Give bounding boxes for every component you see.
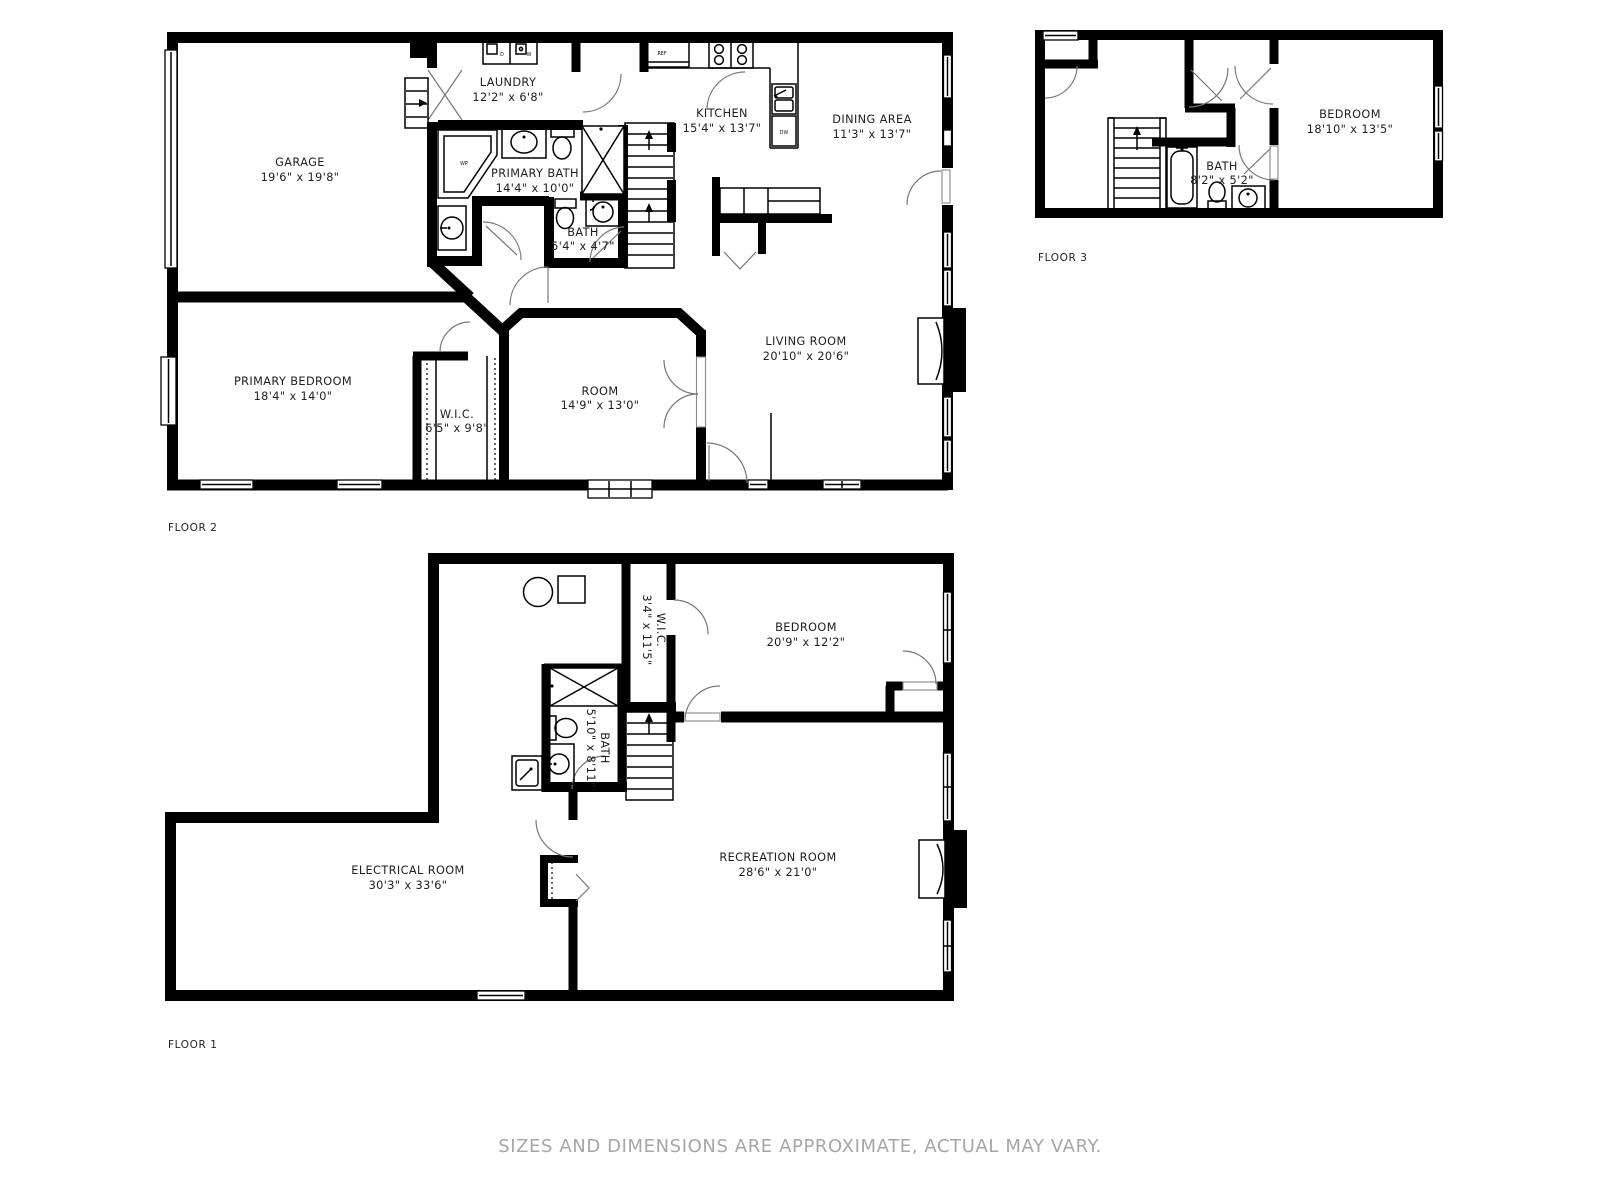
floorplan-canvas: D W REF: [0, 0, 1600, 1200]
dishwasher-icon: DW: [772, 116, 796, 146]
kitchen-sink-icon: [772, 84, 796, 114]
room-label: BATH: [567, 226, 599, 239]
sink-icon: [1232, 186, 1265, 210]
sink-icon: [438, 206, 466, 250]
furnace-icon: [558, 576, 585, 603]
room-label: KITCHEN: [696, 107, 748, 120]
room-dims: 11'3" x 13'7": [833, 128, 912, 141]
floor2-fireplace: [918, 318, 944, 384]
toilet-icon: [555, 199, 576, 229]
sink-icon: [586, 197, 620, 226]
room-label: BATH: [598, 732, 611, 764]
toilet-icon: [547, 716, 577, 740]
room-dims: 18'10" x 13'5": [1307, 123, 1393, 136]
shower-icon: [582, 126, 624, 194]
room-dims: 6'5" x 9'8": [425, 422, 489, 435]
floor-3-plan: BEDROOM 18'10" x 13'5" BATH 8'2" x 5'2": [1035, 30, 1443, 218]
floor3-doors: [1045, 66, 1280, 180]
island-counter: [720, 188, 820, 214]
room-dims: 15'4" x 13'7": [683, 122, 762, 135]
fridge-icon: REF: [645, 41, 689, 67]
room-label: ROOM: [582, 385, 619, 398]
svg-text:D: D: [500, 52, 504, 58]
floor2-label: FLOOR 2: [168, 522, 218, 534]
shower-icon: [550, 668, 618, 706]
room-dims: 3'4" x 11'5": [640, 594, 653, 665]
floorplan-page: D W REF: [0, 0, 1600, 1200]
room-dims: 8'2" x 5'2": [1190, 174, 1254, 187]
room-label: BEDROOM: [775, 621, 837, 634]
room-label: GARAGE: [275, 156, 325, 169]
water-heater-icon: [524, 578, 553, 607]
floor3-label: FLOOR 3: [1038, 252, 1088, 264]
room-dims: 14'4" x 10'0": [496, 182, 575, 195]
floor3-labels: BEDROOM 18'10" x 13'5" BATH 8'2" x 5'2": [1190, 108, 1393, 187]
room-dims: 19'6" x 19'8": [261, 171, 340, 184]
sink-icon: [502, 127, 546, 158]
room-label: RECREATION ROOM: [719, 851, 836, 864]
room-label: W.I.C.: [654, 613, 667, 647]
svg-text:REF: REF: [657, 51, 666, 57]
floor1-fireplace: [919, 830, 967, 908]
room-dims: 20'9" x 12'2": [767, 636, 846, 649]
room-dims: 28'6" x 21'0": [739, 866, 818, 879]
bathtub-icon: WP: [438, 130, 497, 198]
utility-sink-icon: [512, 756, 542, 790]
room-label: LAUNDRY: [480, 76, 537, 89]
room-label: DINING AREA: [832, 113, 911, 126]
floor1-windows: [477, 592, 952, 1000]
disclaimer-text: SIZES AND DIMENSIONS ARE APPROXIMATE, AC…: [0, 1136, 1600, 1157]
room-dims: 30'3" x 33'6": [369, 879, 448, 892]
room-dims: 5'4" x 4'7": [551, 240, 615, 253]
floor3-stairs: [1108, 118, 1166, 210]
floor-2-plan: D W REF: [161, 32, 966, 498]
room-dims: 20'10" x 20'6": [763, 350, 849, 363]
floor1-label: FLOOR 1: [168, 1039, 218, 1051]
room-dims: 14'9" x 13'0": [561, 399, 640, 412]
svg-text:WP: WP: [460, 161, 468, 167]
floor1-labels: BEDROOM 20'9" x 12'2" RECREATION ROOM 28…: [351, 594, 845, 892]
toilet-icon: [551, 128, 574, 159]
svg-text:DW: DW: [780, 130, 789, 136]
room-dims: 18'4" x 14'0": [254, 390, 333, 403]
floor-1-plan: BEDROOM 20'9" x 12'2" RECREATION ROOM 28…: [165, 553, 967, 1001]
room-label: PRIMARY BATH: [491, 167, 579, 180]
floor1-stairs: [626, 712, 673, 800]
washer-dryer-icon: D W: [483, 40, 537, 64]
room-dims: 5'10" x 8'11": [584, 709, 597, 788]
room-label: W.I.C.: [440, 408, 474, 421]
room-label: BATH: [1206, 160, 1238, 173]
room-label: LIVING ROOM: [765, 335, 846, 348]
room-label: BEDROOM: [1319, 108, 1381, 121]
room-dims: 12'2" x 6'8": [472, 91, 543, 104]
floor2-walls: [167, 32, 966, 490]
svg-text:W: W: [527, 52, 532, 58]
stove-icon: [709, 40, 753, 68]
room-label: ELECTRICAL ROOM: [351, 864, 464, 877]
room-label: PRIMARY BEDROOM: [234, 375, 352, 388]
